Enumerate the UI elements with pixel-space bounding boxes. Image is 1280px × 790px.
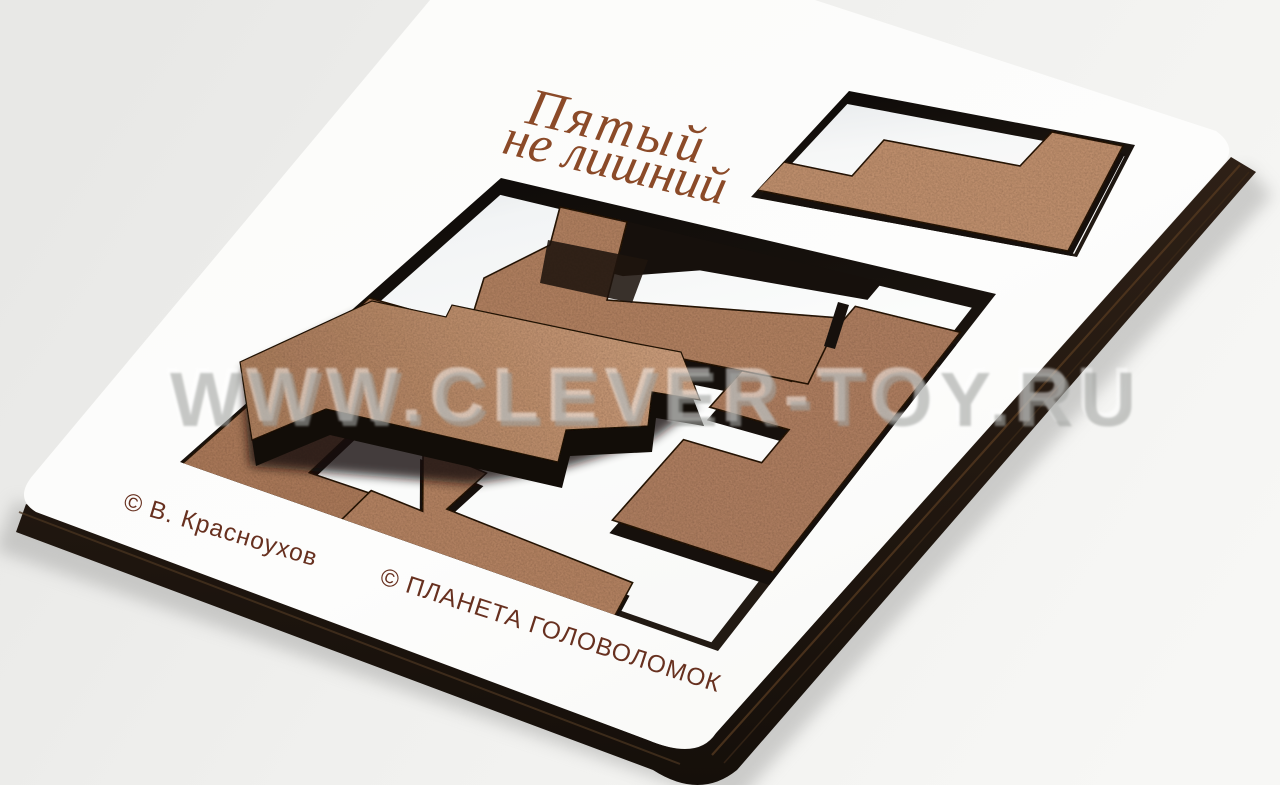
svg-text:WWW.CLEVER-TOY.RU: WWW.CLEVER-TOY.RU — [170, 357, 1143, 443]
